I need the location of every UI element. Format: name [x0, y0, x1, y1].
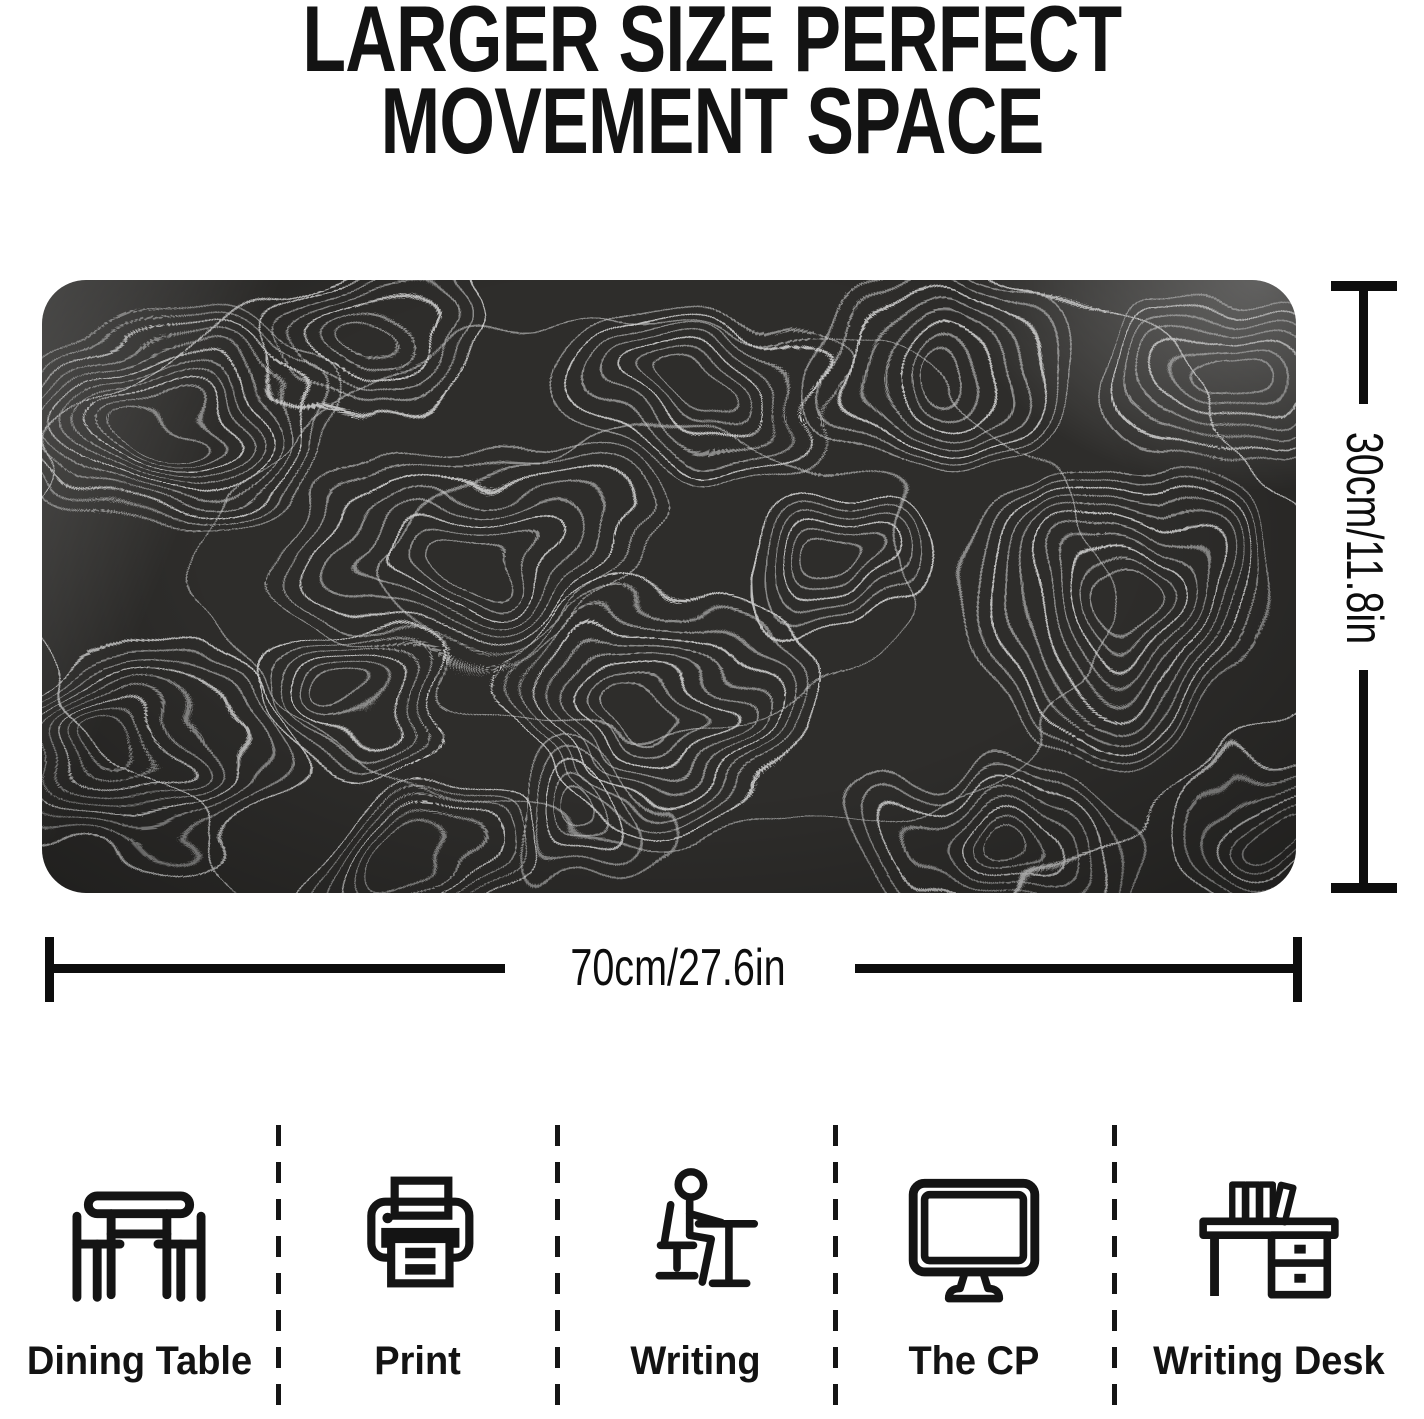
feature-writing: Writing — [557, 1123, 835, 1419]
width-dim-label: 70cm/27.6in — [570, 938, 785, 998]
height-dim-cap-bottom — [1331, 883, 1397, 893]
person-writing-icon — [620, 1163, 772, 1315]
headline-line-2: MOVEMENT SPACE — [381, 80, 1044, 162]
width-dim-line-right — [855, 964, 1300, 973]
width-dim-line-left — [45, 964, 505, 973]
printer-icon — [348, 1163, 488, 1315]
computer-monitor-icon — [895, 1163, 1053, 1315]
feature-dining-table: Dining Table — [0, 1123, 278, 1419]
feature-writing-desk: Writing Desk — [1114, 1123, 1424, 1419]
feature-label: Writing Desk — [1153, 1339, 1385, 1384]
feature-the-cp: The CP — [835, 1123, 1113, 1419]
height-dim-line-lower — [1359, 670, 1368, 892]
feature-label: Dining Table — [27, 1339, 252, 1384]
feature-row: Dining Table Print — [0, 1123, 1424, 1419]
feature-label: Writing — [631, 1339, 761, 1384]
height-dim-line-upper — [1359, 281, 1368, 404]
feature-print: Print — [278, 1123, 556, 1419]
feature-label: The CP — [909, 1339, 1040, 1384]
writing-desk-icon — [1174, 1163, 1364, 1315]
headline: LARGER SIZE PERFECT MOVEMENT SPACE — [0, 0, 1424, 160]
dining-table-icon — [47, 1163, 231, 1315]
mat-vignette — [42, 280, 1296, 893]
width-dim-cap-right — [1293, 937, 1302, 1002]
height-dim-label: 30cm/11.8in — [1334, 432, 1394, 644]
desk-mat-photo — [42, 280, 1296, 893]
product-diagram: LARGER SIZE PERFECT MOVEMENT SPACE — [0, 0, 1424, 1419]
feature-label: Print — [374, 1339, 461, 1384]
